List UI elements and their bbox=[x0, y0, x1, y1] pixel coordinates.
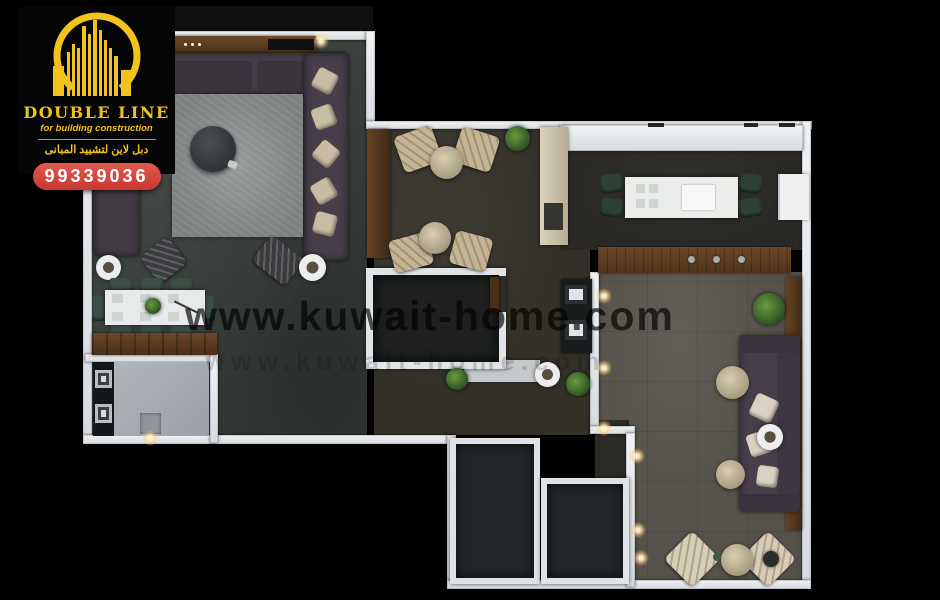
console-light bbox=[191, 43, 194, 46]
side-table bbox=[757, 424, 783, 450]
console-light bbox=[198, 43, 201, 46]
vent-slot bbox=[744, 123, 758, 127]
company-logo: DOUBLE LINE for building construction دب… bbox=[18, 6, 175, 174]
phone-badge: 99339036 bbox=[33, 163, 161, 190]
buildings-arch-logo-icon bbox=[37, 8, 157, 100]
island-chair bbox=[738, 196, 763, 218]
kitchen-top-cabinets bbox=[560, 125, 803, 151]
bottom-room-b bbox=[541, 478, 629, 584]
counter-knob bbox=[688, 256, 695, 263]
living-table bbox=[721, 544, 753, 576]
centerpiece-plant bbox=[145, 298, 161, 314]
wood-partition bbox=[367, 129, 390, 258]
kitchen-island bbox=[625, 177, 738, 218]
sofa-back bbox=[777, 353, 800, 494]
plant bbox=[505, 126, 530, 151]
counter-knob bbox=[713, 256, 720, 263]
vent-slot bbox=[648, 123, 664, 127]
table-tray bbox=[763, 551, 779, 567]
tv-screen bbox=[268, 39, 314, 50]
bottom-room-a bbox=[450, 438, 540, 584]
lounge-table bbox=[430, 146, 463, 179]
table-cup bbox=[713, 553, 721, 561]
pillow bbox=[756, 465, 780, 489]
island-chair bbox=[599, 172, 624, 194]
floor-plan-render: www.kuwait-home.com www.kuwait-home.com … bbox=[0, 0, 940, 600]
vent-slot bbox=[779, 123, 795, 127]
wall-sconce bbox=[313, 33, 329, 49]
logo-arabic-text: دبل لاين لتشييد المبانى bbox=[18, 143, 175, 156]
wall-sconce bbox=[630, 522, 646, 538]
plant bbox=[753, 293, 785, 325]
counter-tray bbox=[544, 203, 563, 230]
wall-sconce bbox=[629, 448, 645, 464]
watermark-text: www.kuwait-home.com bbox=[185, 293, 675, 340]
island-chair bbox=[599, 196, 624, 218]
place-setting bbox=[112, 312, 123, 321]
island-platter bbox=[682, 185, 715, 210]
console-light bbox=[184, 43, 187, 46]
sofa-armrest bbox=[739, 335, 800, 353]
side-table bbox=[299, 254, 326, 281]
wall-utility-top bbox=[85, 354, 218, 362]
pouf bbox=[716, 366, 749, 399]
wall-sconce bbox=[633, 550, 649, 566]
island-tray bbox=[636, 184, 645, 193]
lounge-table bbox=[419, 222, 451, 254]
place-setting bbox=[112, 294, 123, 303]
logo-title: DOUBLE LINE bbox=[18, 103, 175, 122]
island-tray bbox=[649, 184, 658, 193]
island-tray bbox=[649, 199, 658, 208]
door-glow bbox=[142, 430, 158, 446]
wall-sconce bbox=[596, 420, 612, 436]
sofa-cushion bbox=[172, 61, 252, 91]
kitchen-niche-box bbox=[778, 174, 809, 220]
washer-unit bbox=[95, 370, 112, 388]
place-setting bbox=[168, 312, 179, 321]
island-tray bbox=[636, 199, 645, 208]
roof-shadow bbox=[158, 6, 373, 32]
dining-chair bbox=[92, 295, 105, 321]
wall-bottom-left bbox=[83, 435, 456, 444]
watermark-text-faint: www.kuwait-home.com bbox=[205, 346, 606, 377]
sofa-armrest bbox=[739, 494, 800, 512]
side-table bbox=[96, 255, 121, 280]
logo-divider bbox=[38, 139, 156, 140]
pouf bbox=[716, 460, 745, 489]
washer-unit bbox=[95, 404, 112, 423]
wall-majlis-right bbox=[366, 31, 375, 129]
logo-subtitle: for building construction bbox=[18, 123, 175, 134]
majlis-rug bbox=[172, 94, 303, 237]
counter-knob bbox=[738, 256, 745, 263]
island-chair bbox=[738, 172, 763, 194]
